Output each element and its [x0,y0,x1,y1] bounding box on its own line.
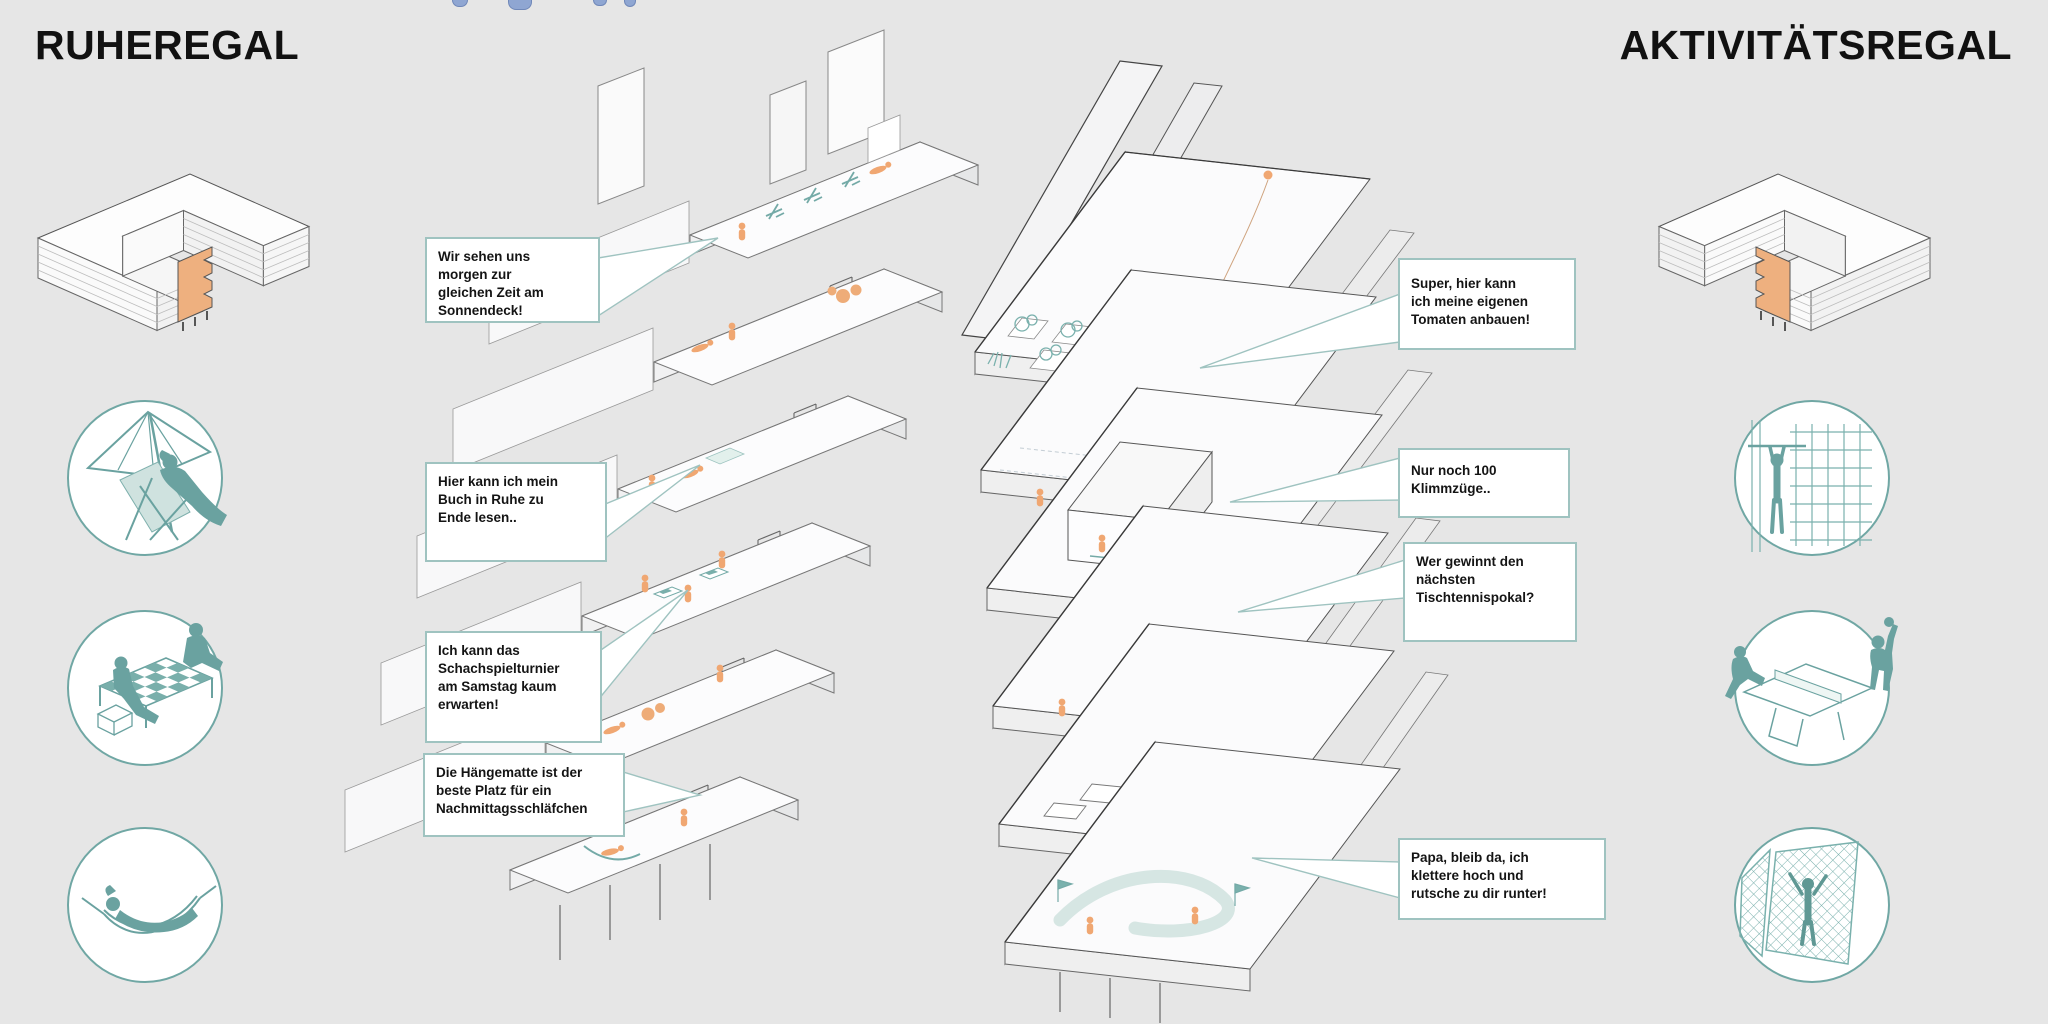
callout-sundeck: Wir sehen uns morgen zur gleichen Zeit a… [425,237,600,323]
aktivitaetsregal-keyplan [1659,174,1930,331]
floor-chess [582,523,870,639]
climbing-nets-icon [1735,828,1889,982]
axonometric-scene [0,0,2048,1024]
chess-tables-icon [68,611,223,765]
callout-tabletennis: Wer gewinnt den nächsten Tischtennispoka… [1403,542,1577,642]
top-edge-artifact [508,0,532,10]
callout-hammock: Die Hängematte ist der beste Platz für e… [423,753,625,837]
parasol-deckchair-icon [68,401,227,555]
callout-chess: Ich kann das Schachspielturnier am Samst… [425,631,602,743]
ruheregal-keyplan [38,174,309,331]
pullup-climbing-wall-icon [1735,401,1889,555]
floor-rest-1 [654,269,942,385]
table-tennis-icon [1725,611,1898,765]
title-ruheregal: RUHEREGAL [35,22,299,69]
hammock-icon [68,828,222,982]
presentation-board: RUHEREGAL AKTIVITÄTSREGAL Wir sehen uns … [0,0,2048,1024]
title-aktivitaetsregal: AKTIVITÄTSREGAL [1620,22,2012,69]
callout-reading: Hier kann ich mein Buch in Ruhe zu Ende … [425,462,607,562]
callout-slide: Papa, bleib da, ich klettere hoch und ru… [1398,838,1606,920]
callout-tomatoes: Super, hier kann ich meine eigenen Tomat… [1398,258,1576,350]
callout-pullups: Nur noch 100 Klimmzüge.. [1398,448,1570,518]
